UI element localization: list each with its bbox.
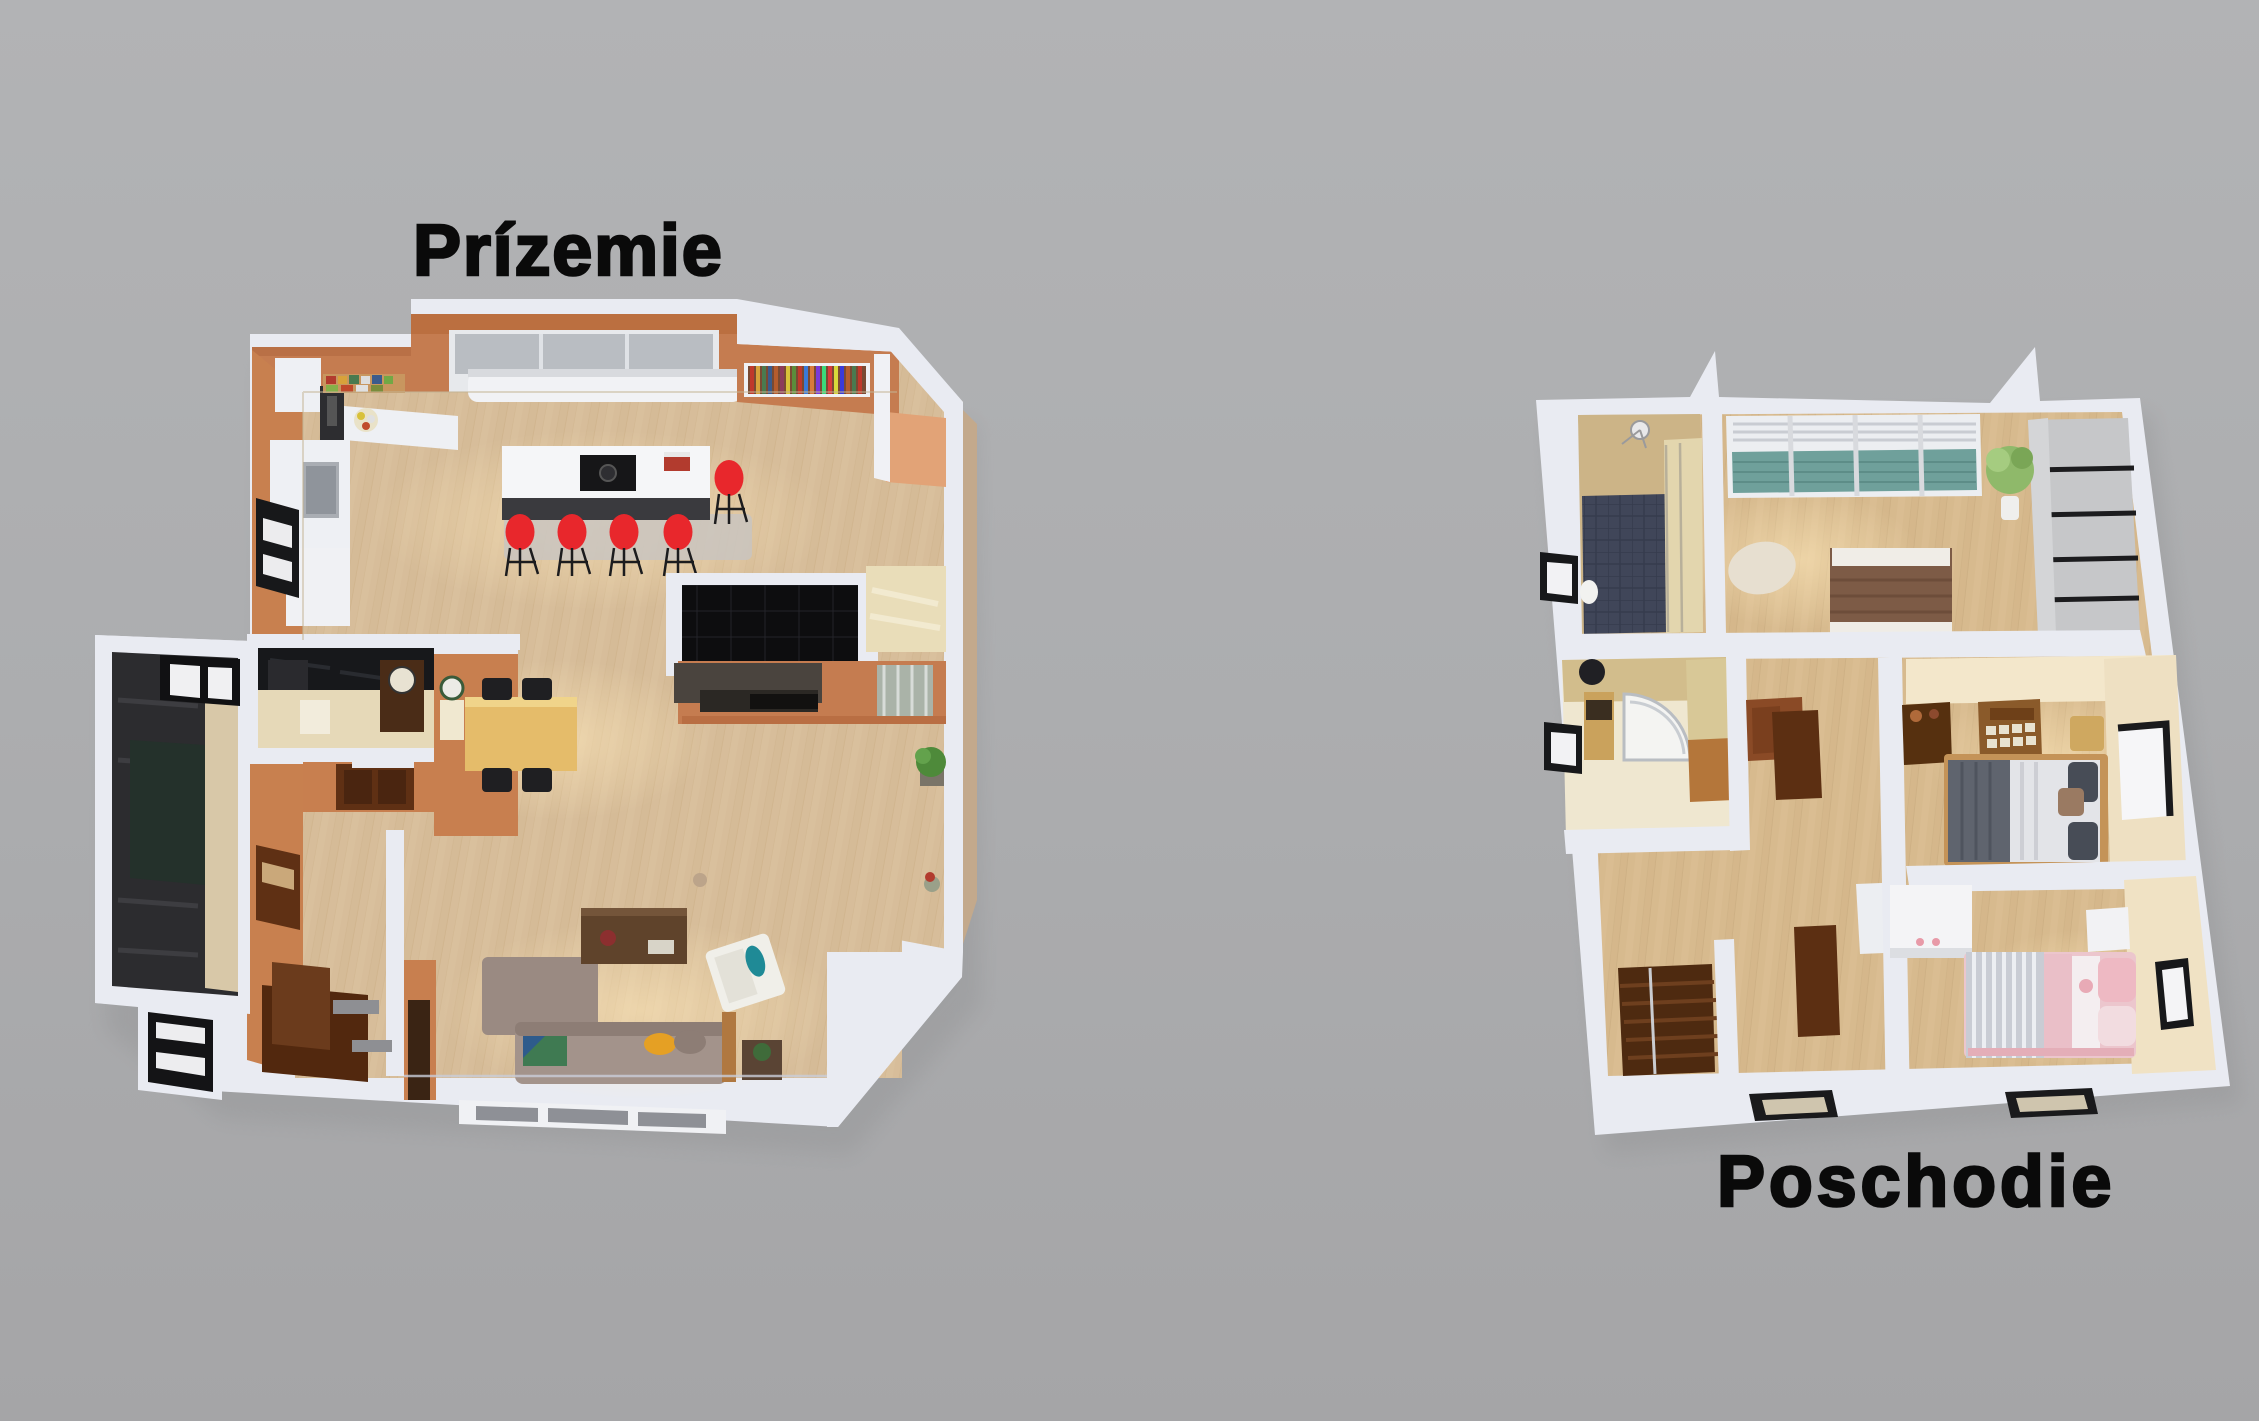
svg-text:Poschodie: Poschodie [1717, 1142, 2115, 1222]
svg-text:Prízemie: Prízemie [413, 211, 724, 291]
